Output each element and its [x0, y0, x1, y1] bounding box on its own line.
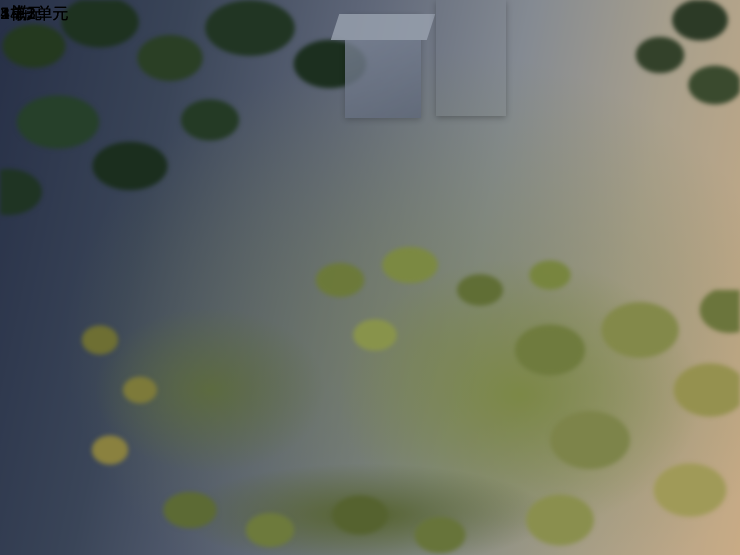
background-tower [436, 0, 506, 116]
forest-canopy [0, 0, 380, 235]
background-tower [345, 14, 421, 118]
forest-canopy [630, 0, 740, 130]
street-trees [70, 310, 210, 490]
aerial-site-plan-render: 3 栋 4 栋 5 栋 2单元 1单元 3单元 2栋2单元 1栋3单元 1栋2单… [0, 0, 740, 555]
unit-badge-building2-unit1: 2栋1单元 [0, 0, 68, 24]
park-trees [500, 290, 740, 555]
